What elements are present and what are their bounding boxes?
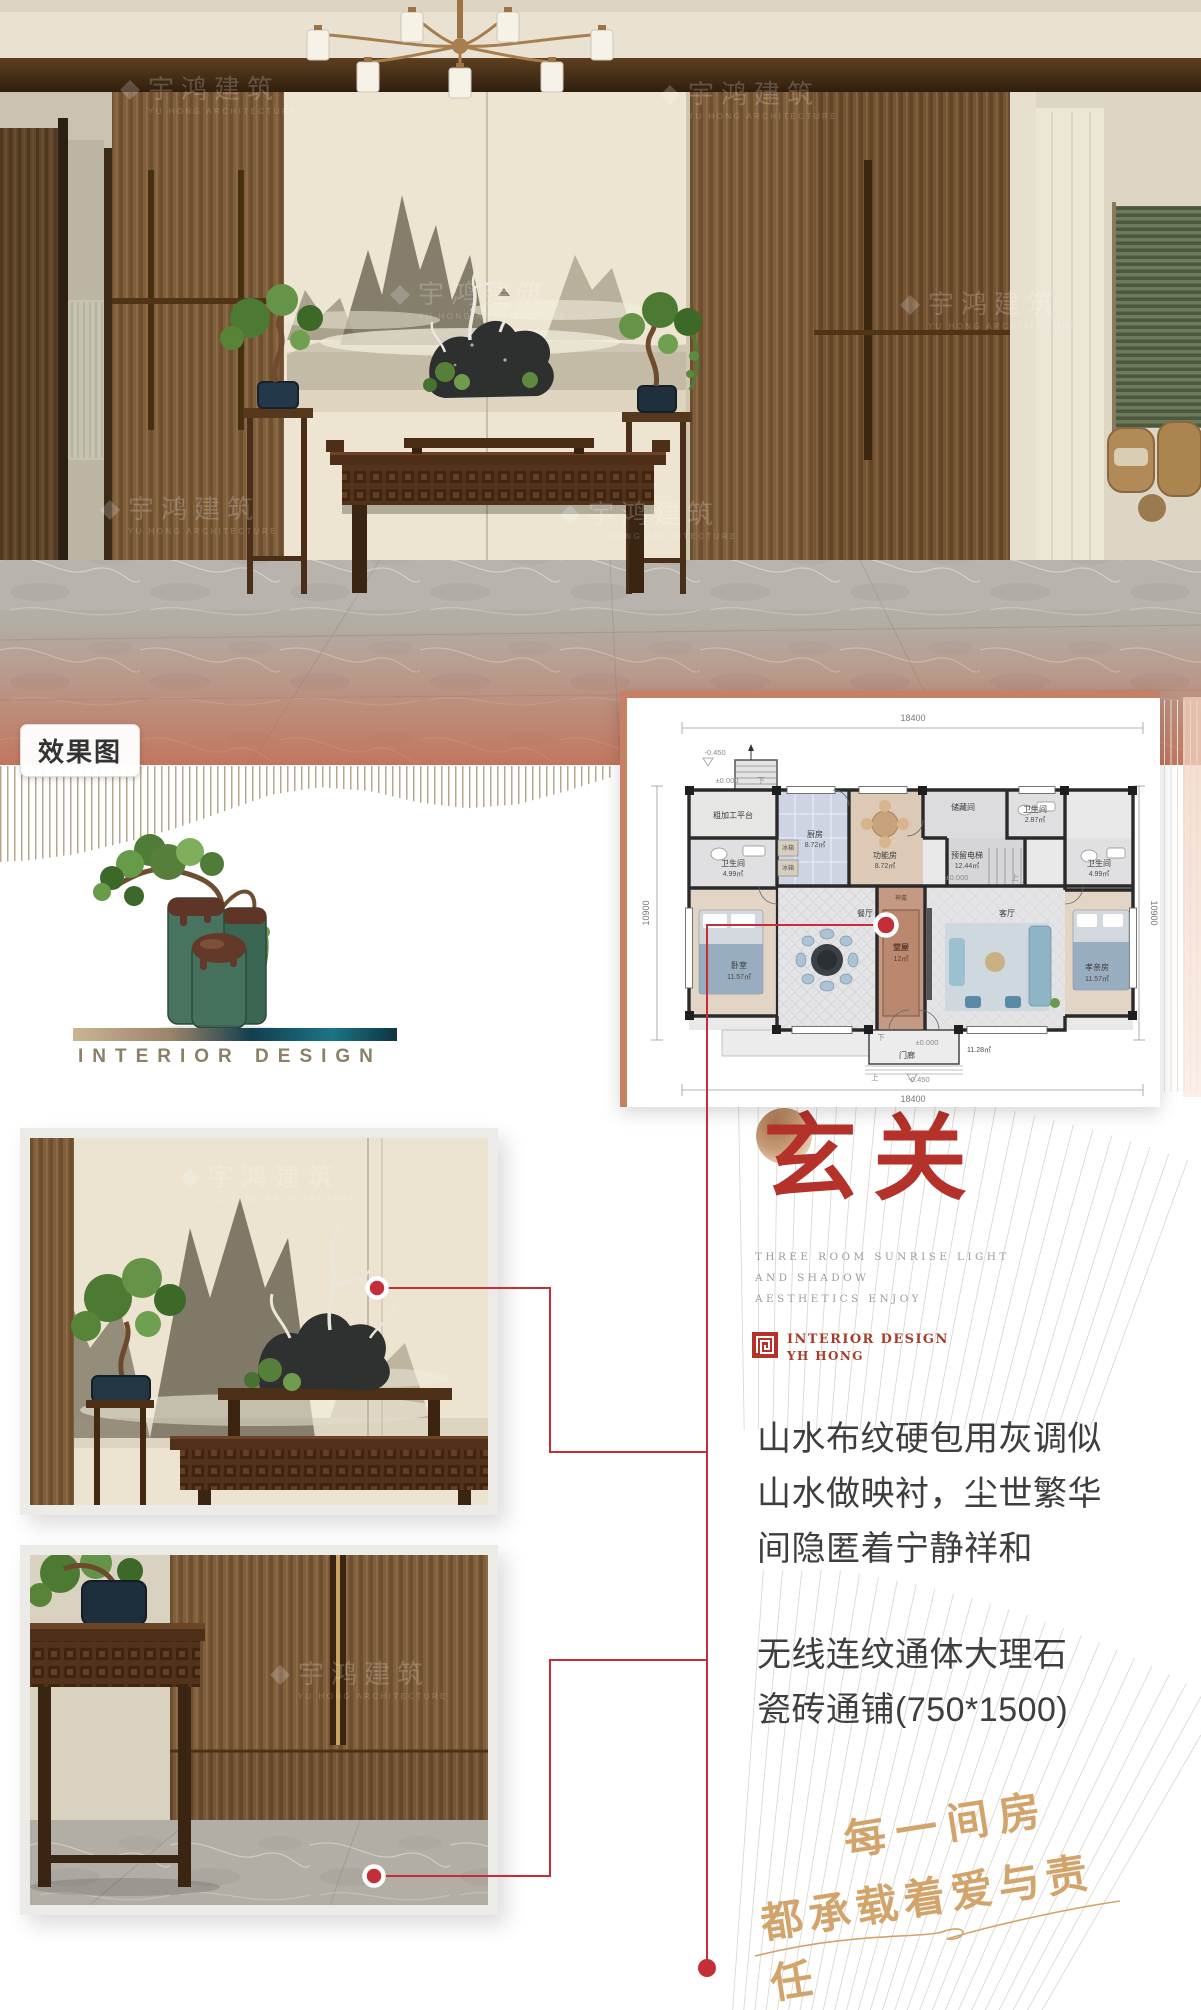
section-title: 玄关 (763, 1112, 983, 1206)
plan-room-kitchen: 厨房 (807, 829, 823, 839)
poster-page: 宇鸿建筑 YU HONG ARCHITECTURE 宇鸿建筑 YU HONG A… (0, 0, 1201, 2010)
svg-text:YU HONG ARCHITECTURE: YU HONG ARCHITECTURE (418, 312, 568, 321)
flourish-underline (735, 1898, 1135, 1968)
plan-arrow-up2: 上 (871, 1073, 879, 1082)
seal-icon (752, 1332, 778, 1358)
vase-illustration (72, 812, 312, 1044)
brand-block: INTERIOR DESIGN YH HONG (752, 1332, 949, 1364)
brand-sub: YH HONG (787, 1348, 949, 1364)
plan-fridge2: 冰箱 (782, 864, 794, 872)
plan-level-platform: ±0.000 (716, 776, 739, 785)
svg-text:8.72㎡: 8.72㎡ (805, 841, 826, 849)
dim-bottom: 18400 (900, 1094, 925, 1104)
plan-bed-left (699, 910, 763, 994)
svg-text:YU HONG ARCHITECTURE: YU HONG ARCHITECTURE (208, 1195, 358, 1204)
svg-text:宇鸿建筑: 宇鸿建筑 (588, 499, 720, 529)
svg-text:YU HONG ARCHITECTURE: YU HONG ARCHITECTURE (588, 532, 738, 541)
plan-arrow-down1: 下 (757, 776, 765, 785)
plan-room-porch: 门廊 (899, 1050, 915, 1060)
subtitle-line: AESTHETICS ENJOY (755, 1289, 1010, 1310)
interior-design-caption: INTERIOR DESIGN (78, 1046, 408, 1068)
svg-text:宇鸿建筑: 宇鸿建筑 (418, 279, 550, 309)
plan-room-storage: 储藏间 (951, 802, 975, 812)
svg-text:8.72㎡: 8.72㎡ (875, 862, 896, 870)
dim-left: 10900 (641, 900, 651, 925)
salmon-edge-decoration (1183, 697, 1201, 1097)
svg-text:2.87㎡: 2.87㎡ (1025, 816, 1046, 824)
svg-text:宇鸿建筑: 宇鸿建筑 (148, 74, 280, 104)
plan-room-bath-tr: 卫生间 (1023, 804, 1047, 814)
plan-level-porch: ±0.000 (916, 1038, 939, 1047)
svg-text:宇鸿建筑: 宇鸿建筑 (208, 1162, 340, 1192)
brand-name: INTERIOR DESIGN (787, 1332, 949, 1348)
plan-level-top: -0.450 (704, 748, 725, 757)
section-subtitle: THREE ROOM SUNRISE LIGHT AND SHADOW AEST… (755, 1247, 1010, 1310)
svg-text:宇鸿建筑: 宇鸿建筑 (128, 494, 260, 524)
svg-text:宇鸿建筑: 宇鸿建筑 (928, 289, 1060, 319)
svg-text:YU HONG ARCHITECTURE: YU HONG ARCHITECTURE (928, 322, 1078, 331)
svg-text:11.28㎡: 11.28㎡ (967, 1046, 991, 1054)
plan-dining-table (796, 929, 858, 991)
svg-text:12㎡: 12㎡ (894, 955, 909, 963)
window-blinds (1116, 206, 1201, 428)
svg-text:4.99㎡: 4.99㎡ (723, 870, 744, 878)
plan-level-bottom: -0.450 (908, 1075, 929, 1084)
plan-room-function: 功能房 (873, 850, 897, 860)
plan-level-hall: ±0.000 (946, 873, 969, 882)
effect-render-tag: 效果图 (20, 724, 140, 777)
svg-text:12.44㎡: 12.44㎡ (955, 862, 980, 870)
svg-text:YU HONG ARCHITECTURE: YU HONG ARCHITECTURE (148, 107, 298, 116)
svg-text:11.57㎡: 11.57㎡ (1085, 975, 1109, 983)
plan-room-living: 客厅 (999, 908, 1015, 918)
svg-text:YU HONG ARCHITECTURE: YU HONG ARCHITECTURE (298, 1692, 448, 1701)
slogan-calligraphy: 每一间房 都承载着爱与责任 (745, 1770, 1111, 2010)
detail-photo-mural: 宇鸿建筑 YU HONG ARCHITECTURE (20, 1128, 498, 1515)
svg-text:11.57㎡: 11.57㎡ (727, 973, 751, 981)
line-end-dot (698, 1959, 716, 1977)
description-paragraph-2: 无线连纹通体大理石瓷砖通铺(750*1500) (757, 1628, 1079, 1738)
plan-fridge1: 冰箱 (782, 844, 794, 852)
sheer-curtain (1036, 108, 1104, 566)
subtitle-line: THREE ROOM SUNRISE LIGHT (755, 1247, 1010, 1268)
dim-right: 10900 (1149, 900, 1159, 925)
detail-photo-console: 宇鸿建筑 YU HONG ARCHITECTURE (20, 1545, 498, 1915)
dim-top: 18400 (900, 713, 925, 723)
floor-plan-panel: 18400 18400 10900 10900 (620, 691, 1160, 1107)
plan-room-elevator: 预留电梯 (951, 850, 983, 860)
plan-room-hall: 堂屋 (893, 942, 909, 952)
hero-scene: 宇鸿建筑 YU HONG ARCHITECTURE 宇鸿建筑 YU HONG A… (0, 0, 1201, 765)
plan-arrow-down2: 下 (877, 1033, 885, 1042)
subtitle-line: AND SHADOW (755, 1268, 1010, 1289)
plan-room-platform: 粗加工平台 (713, 810, 753, 820)
plan-room-bath-right: 卫生间 (1087, 858, 1111, 868)
ceramic-vases (147, 898, 287, 1037)
plan-room-bedroom-right: 孝亲房 (1085, 962, 1109, 972)
plan-living-furniture (927, 908, 1060, 1011)
plan-arrow-up1: 上 (1011, 873, 1019, 882)
svg-text:4.99㎡: 4.99㎡ (1089, 870, 1110, 878)
plan-room-bath-left: 卫生间 (721, 858, 745, 868)
hero-photo: 宇鸿建筑 YU HONG ARCHITECTURE 宇鸿建筑 YU HONG A… (0, 0, 1201, 765)
plan-shrine: 神龛 (895, 894, 907, 902)
gradient-bar-decoration (73, 1028, 397, 1041)
svg-text:宇鸿建筑: 宇鸿建筑 (298, 1659, 430, 1689)
plan-room-bedroom-left: 卧室 (731, 960, 747, 970)
floor-plan: 18400 18400 10900 10900 (627, 698, 1160, 1107)
plan-room-dining: 餐厅 (857, 909, 873, 918)
svg-text:YU HONG ARCHITECTURE: YU HONG ARCHITECTURE (128, 527, 278, 536)
svg-text:YU HONG ARCHITECTURE: YU HONG ARCHITECTURE (688, 112, 838, 121)
description-paragraph-1: 山水布纹硬包用灰调似山水做映衬，尘世繁华间隐匿着宁静祥和 (757, 1412, 1111, 1577)
svg-text:宇鸿建筑: 宇鸿建筑 (688, 79, 820, 109)
